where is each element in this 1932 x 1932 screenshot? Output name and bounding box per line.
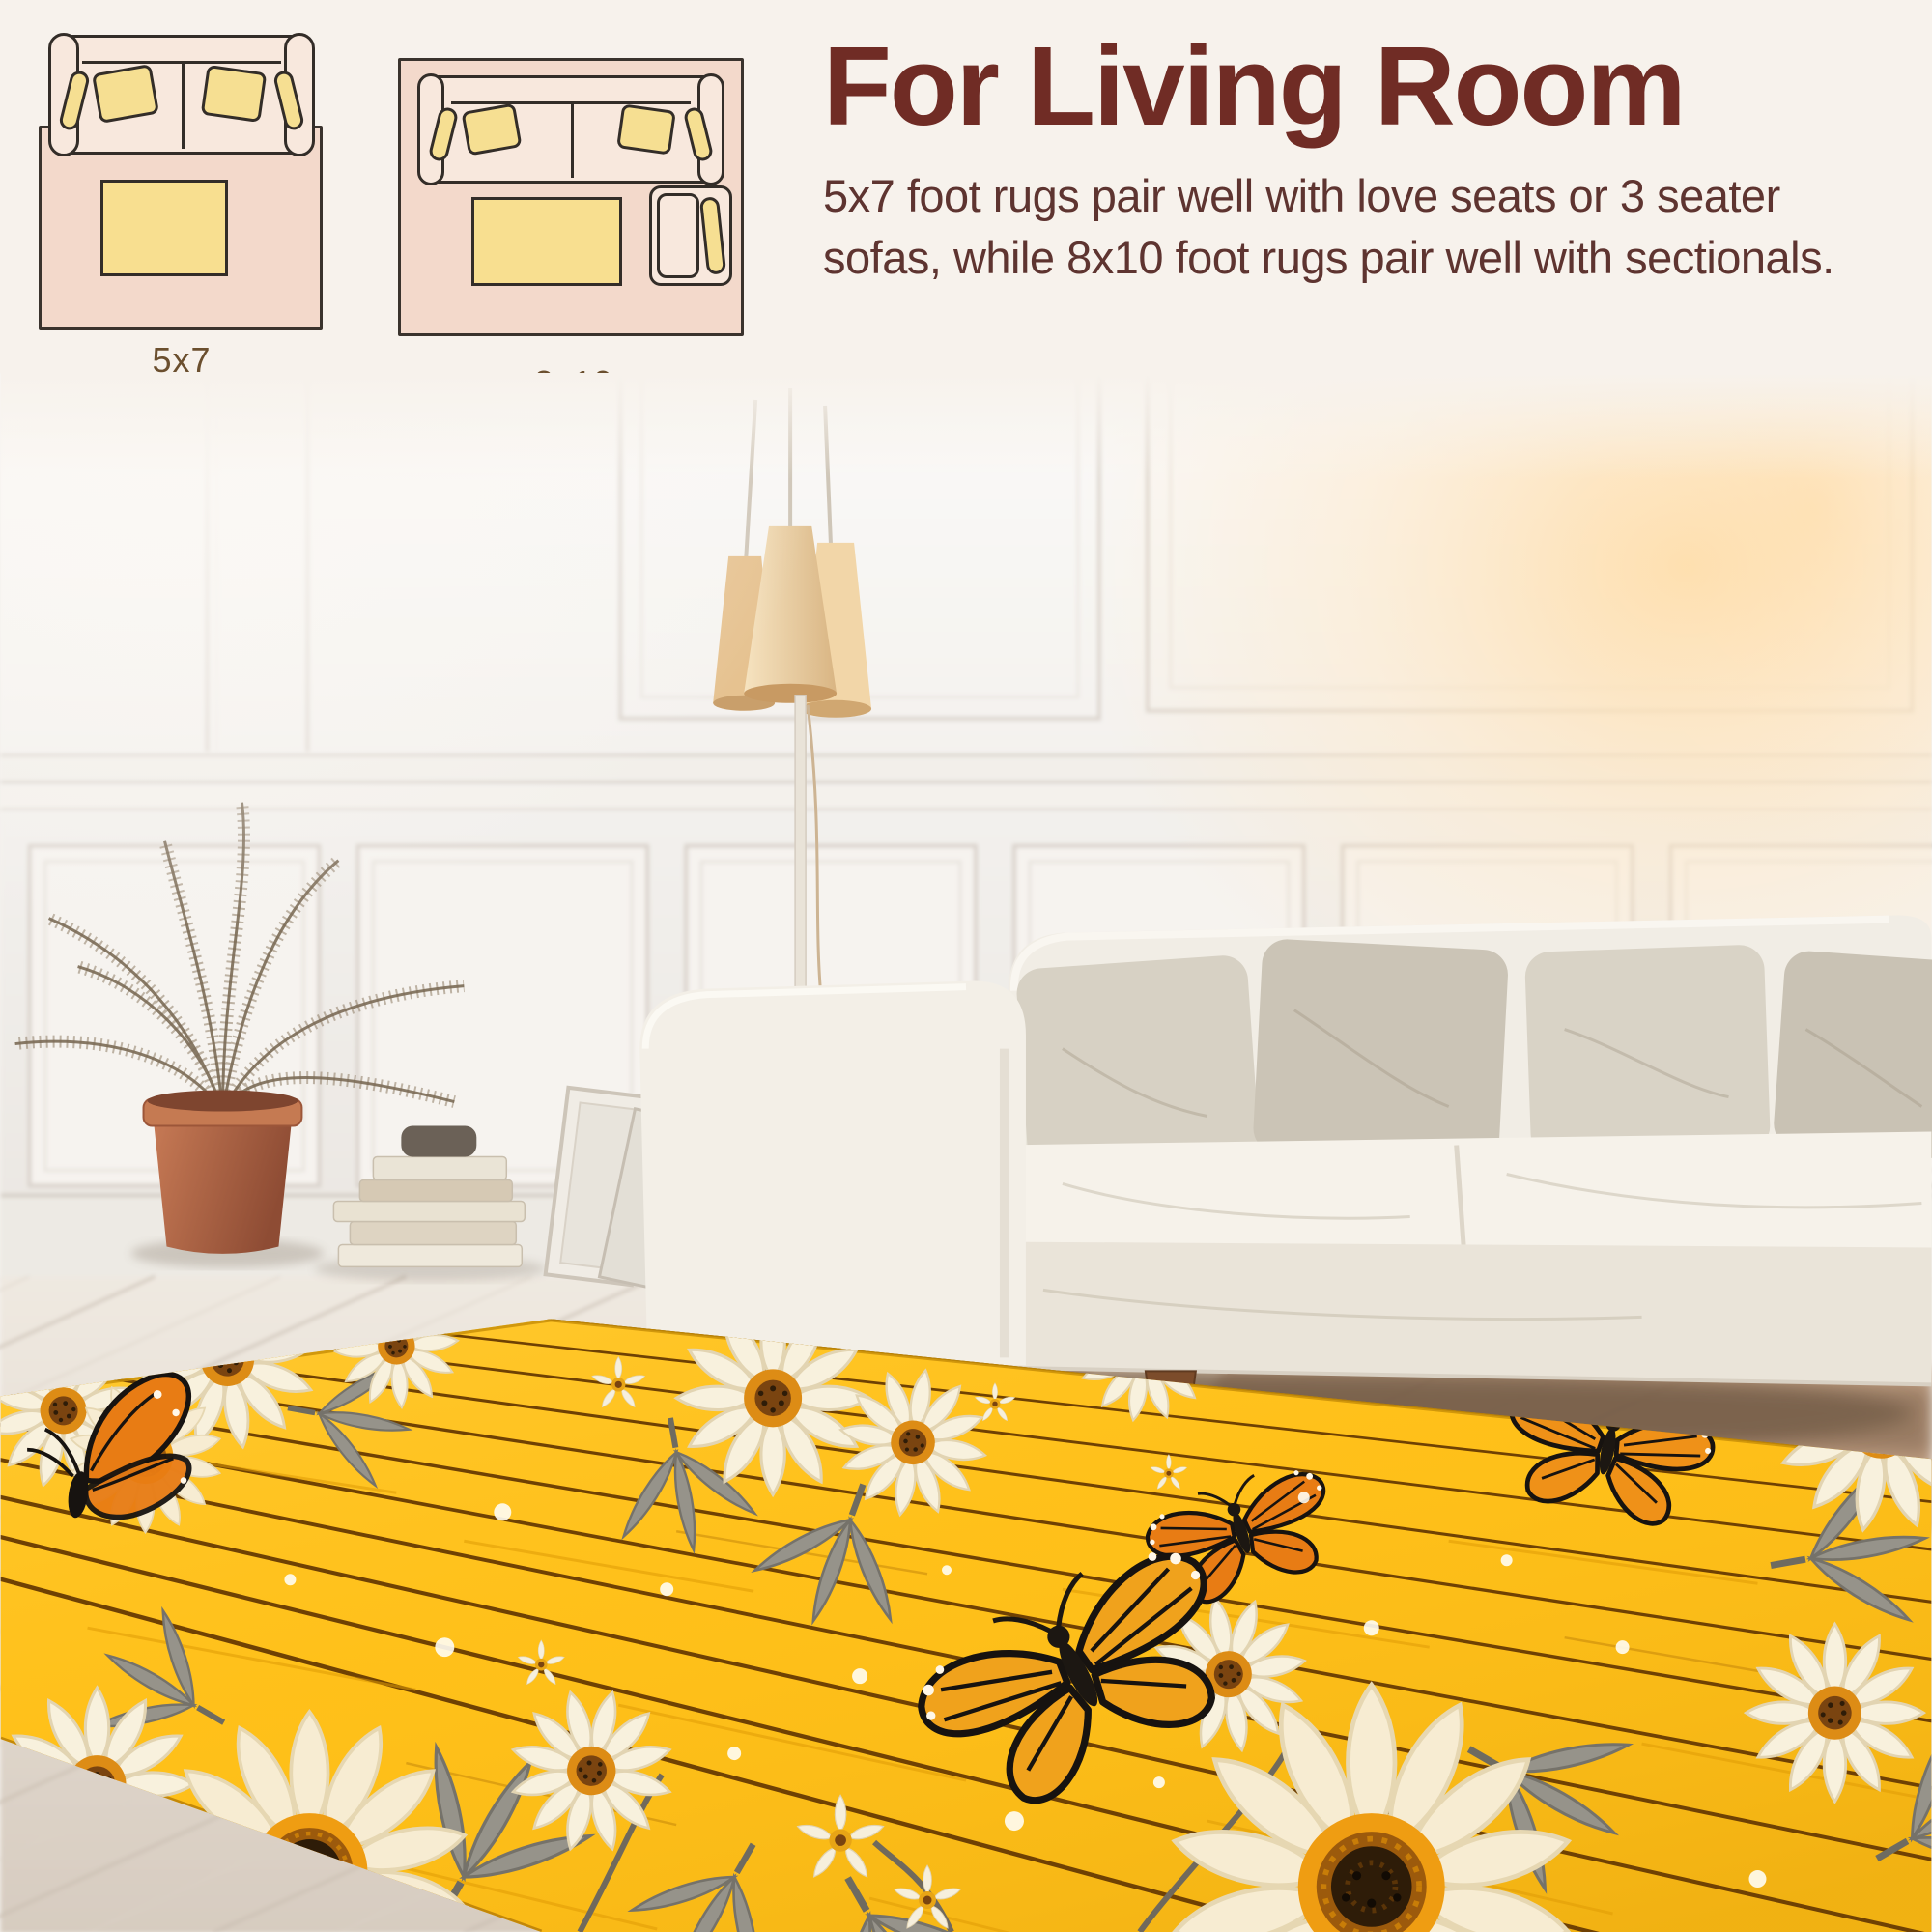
sofa-top-view-icon [54,35,309,155]
product-infographic: 5x7 8x10 For Living Room 5x7 [0,0,1932,1932]
throw-pillow-icon [201,65,268,123]
living-room-photo [0,373,1932,1932]
stone-ornament [401,1126,476,1157]
page-title: For Living Room [823,27,1932,146]
throw-pillow-icon [92,64,159,124]
throw-pillow-icon [616,103,676,155]
top-fade [1,373,1932,479]
description-text: 5x7 foot rugs pair well with love seats … [823,165,1932,289]
sofa-cushion-divider [571,101,574,178]
armchair-pillow-icon [699,196,726,275]
sofa-cushion-divider [182,61,185,149]
description-line-1: 5x7 foot rugs pair well with love seats … [823,170,1780,221]
headline-block: For Living Room 5x7 foot rugs pair well … [823,27,1932,289]
rug-size-diagram-5x7: 5x7 [37,35,327,375]
throw-pillow-icon [461,102,522,156]
size-guide-section: 5x7 8x10 For Living Room 5x7 [0,0,1932,373]
terracotta-pot [144,1091,302,1254]
armchair-top-view-icon [649,185,732,286]
armchair-seat-line [657,193,699,278]
coffee-table-icon [100,180,228,276]
rug-size-diagram-8x10: 8x10 [398,48,750,381]
coffee-table-icon [471,197,622,286]
sofa-top-view-icon [423,75,719,184]
description-line-2: sofas, while 8x10 foot rugs pair well wi… [823,232,1834,283]
